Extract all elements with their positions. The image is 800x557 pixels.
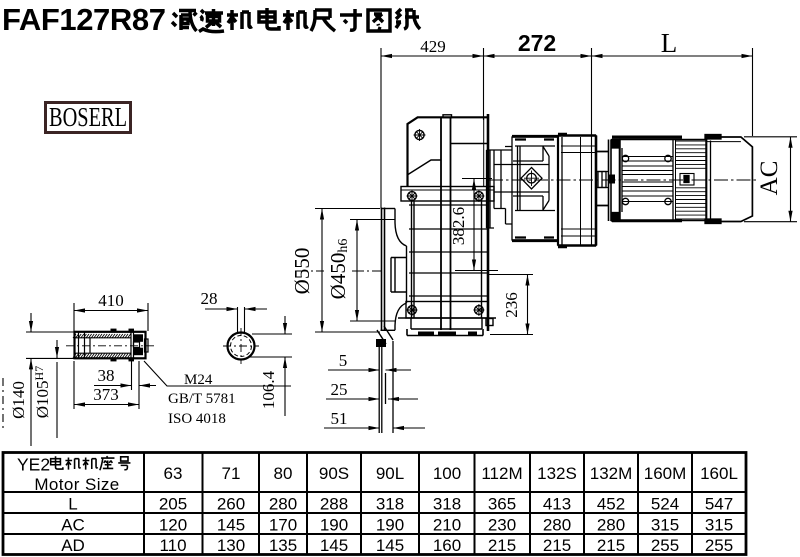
svg-text:ISO 4018: ISO 4018 xyxy=(168,411,226,427)
svg-text:25: 25 xyxy=(331,380,348,399)
svg-text:106.4: 106.4 xyxy=(259,370,278,409)
svg-text:373: 373 xyxy=(93,385,119,404)
svg-text:145: 145 xyxy=(217,516,245,535)
svg-text:315: 315 xyxy=(705,516,733,535)
svg-text:132M: 132M xyxy=(590,464,633,483)
svg-text:260: 260 xyxy=(217,495,245,514)
svg-text:71: 71 xyxy=(222,464,241,483)
svg-text:524: 524 xyxy=(651,495,679,514)
svg-text:190: 190 xyxy=(320,516,348,535)
svg-text:410: 410 xyxy=(98,291,124,310)
svg-text:272: 272 xyxy=(518,30,556,56)
svg-text:365: 365 xyxy=(488,495,516,514)
svg-text:547: 547 xyxy=(705,495,733,514)
svg-text:112M: 112M xyxy=(481,464,522,483)
svg-text:AD: AD xyxy=(61,536,85,555)
svg-text:160L: 160L xyxy=(700,464,738,483)
svg-text:Motor Size: Motor Size xyxy=(34,475,119,494)
svg-text:AC: AC xyxy=(61,516,85,535)
svg-text:255: 255 xyxy=(705,536,733,555)
svg-text:190: 190 xyxy=(376,516,404,535)
svg-text:215: 215 xyxy=(597,536,625,555)
svg-text:280: 280 xyxy=(543,516,571,535)
svg-text:160M: 160M xyxy=(644,464,687,483)
svg-text:429: 429 xyxy=(420,37,446,56)
svg-text:90S: 90S xyxy=(319,464,349,483)
svg-text:452: 452 xyxy=(597,495,625,514)
svg-text:Ø140: Ø140 xyxy=(9,381,28,419)
svg-text:90L: 90L xyxy=(376,464,404,483)
svg-text:Ø450h6: Ø450h6 xyxy=(326,239,351,300)
svg-text:280: 280 xyxy=(269,495,297,514)
svg-text:205: 205 xyxy=(159,495,187,514)
svg-text:63: 63 xyxy=(164,464,183,483)
svg-text:132S: 132S xyxy=(537,464,577,483)
svg-text:145: 145 xyxy=(376,536,404,555)
svg-text:110: 110 xyxy=(159,536,186,555)
svg-text:M24: M24 xyxy=(184,372,213,388)
svg-text:135: 135 xyxy=(269,536,297,555)
svg-text:120: 120 xyxy=(159,516,187,535)
svg-text:170: 170 xyxy=(269,516,297,535)
svg-text:318: 318 xyxy=(433,495,461,514)
svg-text:215: 215 xyxy=(488,536,516,555)
svg-text:38: 38 xyxy=(98,366,115,385)
svg-text:315: 315 xyxy=(651,516,679,535)
svg-text:413: 413 xyxy=(543,495,571,514)
svg-text:288: 288 xyxy=(320,495,348,514)
svg-text:AC: AC xyxy=(756,161,783,196)
svg-text:BOSERL: BOSERL xyxy=(49,102,127,132)
svg-text:L: L xyxy=(661,28,678,58)
svg-text:145: 145 xyxy=(320,536,348,555)
svg-text:318: 318 xyxy=(376,495,404,514)
svg-text:5: 5 xyxy=(339,351,348,370)
svg-text:236: 236 xyxy=(502,292,521,318)
svg-text:28: 28 xyxy=(201,289,218,308)
svg-text:YE2: YE2 xyxy=(17,455,50,475)
svg-text:130: 130 xyxy=(217,536,245,555)
svg-text:160: 160 xyxy=(433,536,461,555)
svg-text:230: 230 xyxy=(488,516,516,535)
svg-text:255: 255 xyxy=(651,536,679,555)
svg-text:280: 280 xyxy=(597,516,625,535)
svg-text:Ø105H7: Ø105H7 xyxy=(32,366,52,418)
svg-text:382.6: 382.6 xyxy=(449,207,468,245)
svg-text:51: 51 xyxy=(331,409,348,428)
svg-text:L: L xyxy=(68,495,77,514)
svg-text:GB/T 5781: GB/T 5781 xyxy=(168,391,236,407)
svg-text:100: 100 xyxy=(433,464,461,483)
svg-text:FAF127R87: FAF127R87 xyxy=(2,2,166,37)
svg-text:210: 210 xyxy=(433,516,461,535)
svg-text:215: 215 xyxy=(543,536,571,555)
svg-text:80: 80 xyxy=(274,464,293,483)
